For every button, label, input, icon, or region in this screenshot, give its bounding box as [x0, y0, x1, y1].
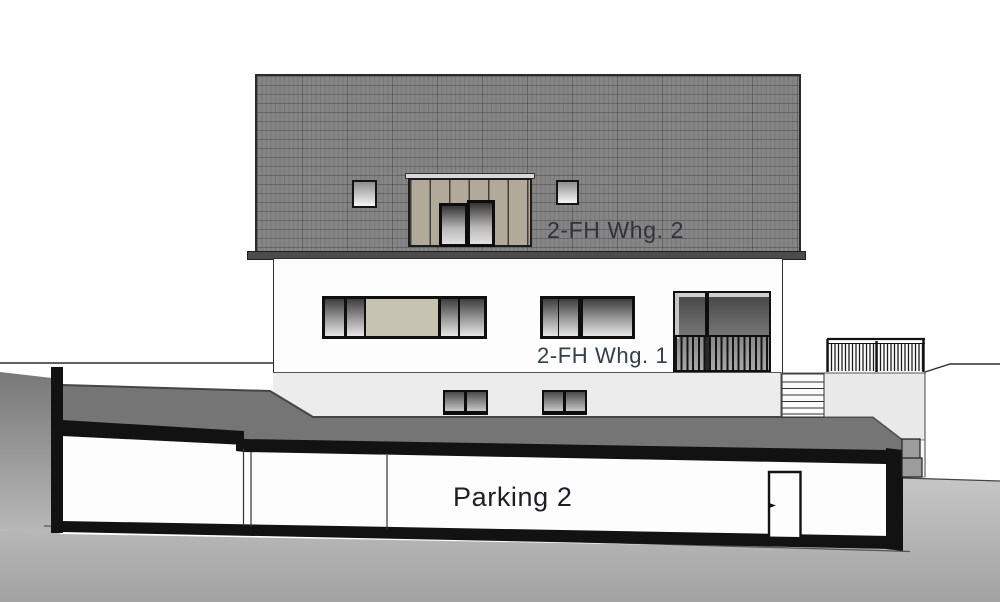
- attic-apartment-label: 2-FH Whg. 2: [547, 217, 684, 244]
- parking-door: [769, 472, 801, 537]
- exterior-steps-blocks: [902, 439, 922, 477]
- parking-right-wall-cut: [886, 448, 903, 551]
- parking-level-label: Parking 2: [453, 482, 572, 513]
- parking-left-wall-cut: [51, 367, 63, 533]
- fence-balusters: [828, 344, 923, 371]
- terrain-left-cut: [0, 372, 52, 533]
- upper-apartment-label: 2-FH Whg. 1: [537, 343, 668, 369]
- elevation-drawing: 2-FH Whg. 2 2-FH Whg. 1 Parking 2: [0, 0, 1000, 602]
- ground-line-right: [925, 364, 1000, 372]
